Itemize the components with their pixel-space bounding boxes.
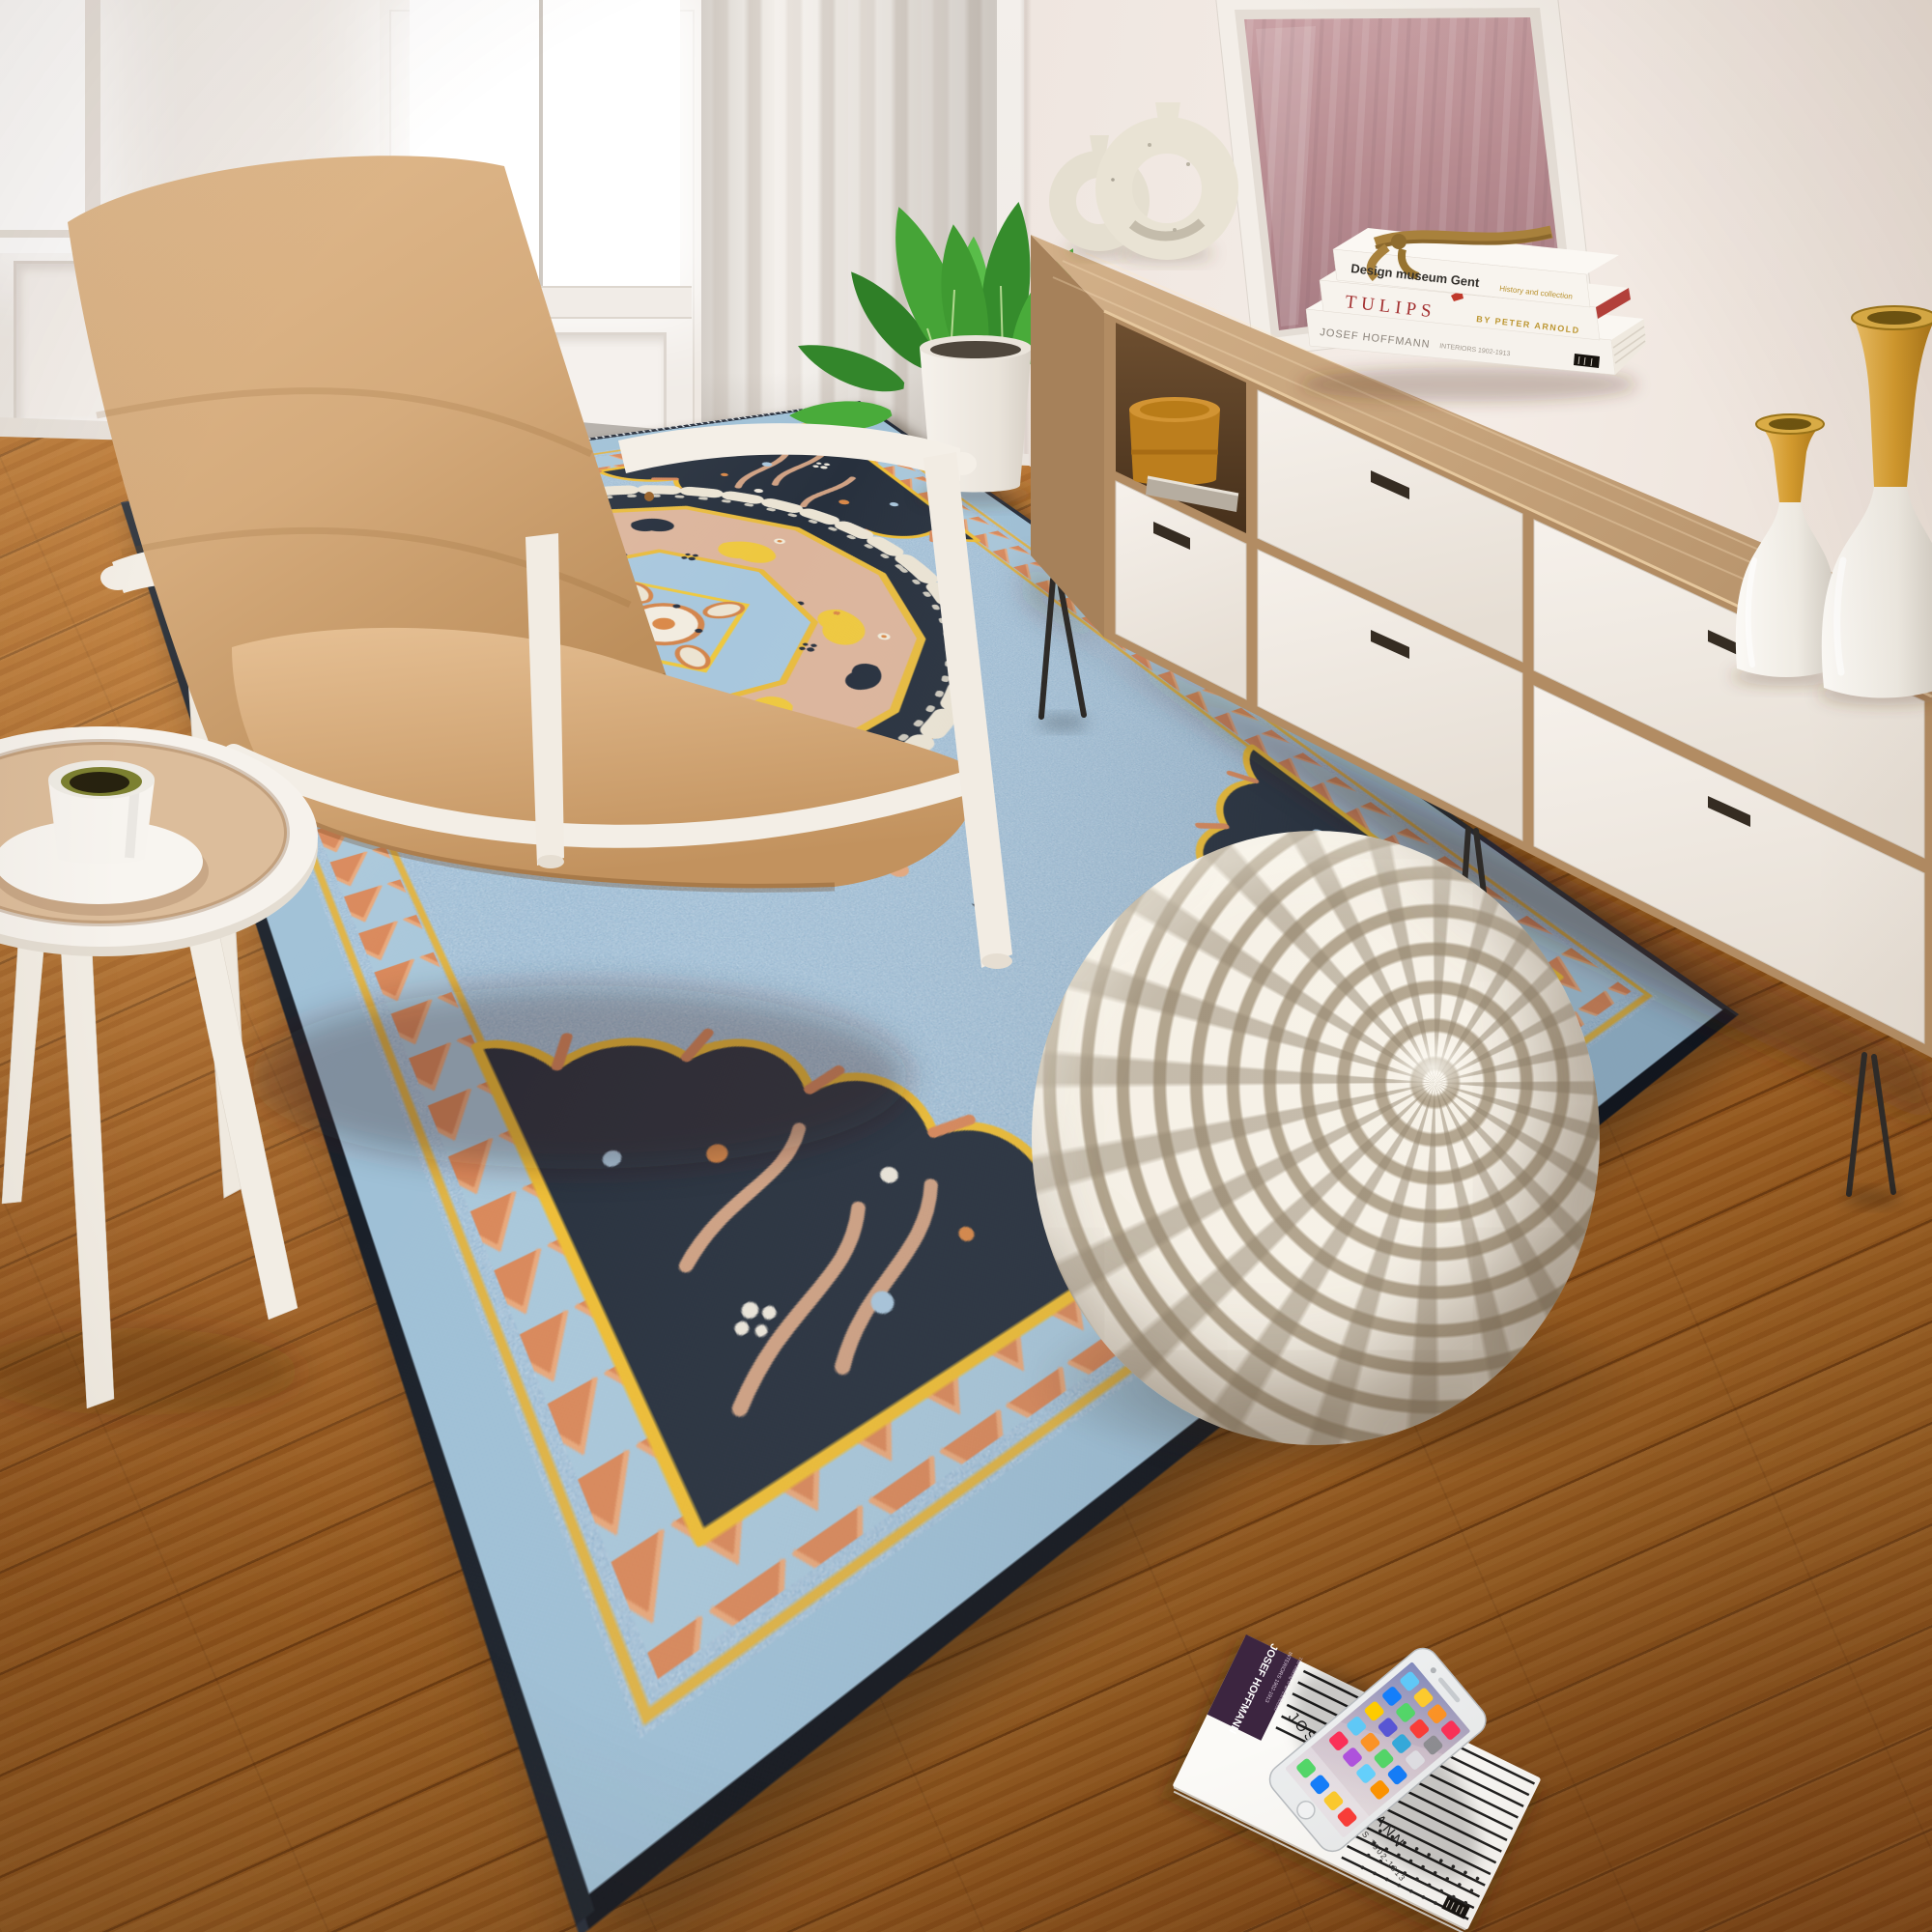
room-scene: JOSEF HOFFMANN INTERIORS 1902-1913 TULIP… bbox=[0, 0, 1932, 1932]
floor-book-layer: JOSEF HOFFMANN INTERIORS 1902-1913 The M… bbox=[0, 0, 1932, 1932]
floor-book: JOSEF HOFFMANN INTERIORS 1902-1913 The M… bbox=[1160, 1629, 1548, 1932]
